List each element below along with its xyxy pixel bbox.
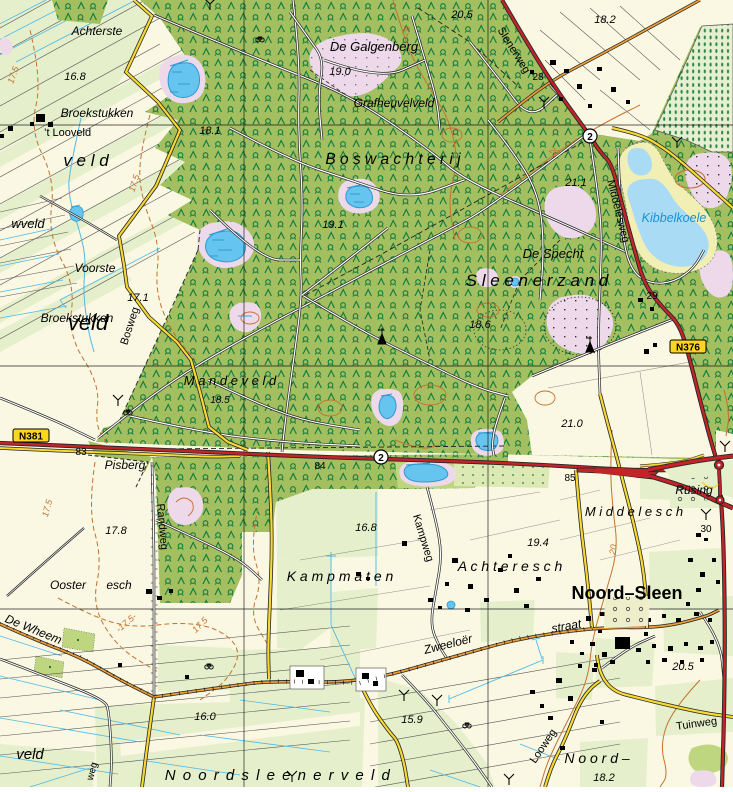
svg-text:Achterste: Achterste — [71, 24, 123, 38]
svg-text:20.5: 20.5 — [671, 661, 694, 673]
svg-text:Broekstukken: Broekstukken — [41, 311, 114, 325]
svg-text:17.8: 17.8 — [105, 525, 127, 537]
svg-text:29: 29 — [646, 291, 658, 302]
svg-text:21.0: 21.0 — [560, 418, 583, 430]
svg-text:N o o r d –: N o o r d – — [564, 750, 630, 766]
svg-text:esch: esch — [106, 578, 132, 592]
svg-text:Ooster: Ooster — [50, 578, 87, 592]
svg-text:wveld: wveld — [11, 216, 45, 231]
svg-text:21.1: 21.1 — [564, 177, 586, 189]
svg-text:16.8: 16.8 — [355, 522, 377, 534]
svg-text:18.1: 18.1 — [199, 125, 220, 137]
svg-text:De Specht: De Specht — [523, 246, 585, 261]
svg-text:18.2: 18.2 — [594, 14, 615, 26]
svg-text:K a m p m a t e n: K a m p m a t e n — [287, 568, 394, 584]
svg-text:M a n d e v e l d: M a n d e v e l d — [184, 373, 277, 388]
svg-text:2: 2 — [378, 453, 384, 464]
svg-text:85: 85 — [564, 473, 576, 484]
svg-text:N o o r d s l e e n e r v e l: N o o r d s l e e n e r v e l d — [165, 767, 392, 784]
svg-text:16.8: 16.8 — [64, 71, 86, 83]
svg-text:veld: veld — [16, 746, 44, 763]
svg-text:Rüsing: Rüsing — [675, 483, 713, 497]
svg-text:Grafheuvelveld: Grafheuvelveld — [354, 96, 435, 110]
svg-text:De Galgenberg: De Galgenberg — [330, 39, 419, 54]
svg-text:Kibbelkoele: Kibbelkoele — [642, 211, 707, 225]
svg-text:17.1: 17.1 — [127, 292, 148, 304]
svg-text:28: 28 — [532, 72, 544, 83]
svg-text:S l e e n e r z a n d: S l e e n e r z a n d — [466, 271, 609, 290]
svg-text:19.4: 19.4 — [527, 537, 548, 549]
svg-text:30: 30 — [700, 524, 712, 535]
svg-text:2: 2 — [587, 132, 593, 143]
svg-text:Pisberg: Pisberg — [105, 458, 146, 472]
svg-text:v e l d: v e l d — [63, 151, 109, 170]
svg-text:18.6: 18.6 — [469, 319, 491, 331]
svg-text:19.0: 19.0 — [329, 66, 351, 78]
svg-text:A c h t e r e s c h: A c h t e r e s c h — [457, 558, 563, 574]
svg-text:Broekstukken: Broekstukken — [61, 106, 134, 120]
svg-text:Voorste: Voorste — [75, 261, 116, 275]
svg-text:18.5: 18.5 — [210, 395, 230, 406]
svg-text:’t Looveld: ’t Looveld — [44, 127, 91, 139]
svg-text:18.2: 18.2 — [593, 772, 614, 784]
svg-text:20: 20 — [607, 544, 619, 557]
svg-text:B o s w a c h t e r i j: B o s w a c h t e r i j — [325, 151, 461, 168]
svg-text:N376: N376 — [676, 343, 700, 354]
svg-text:20.5: 20.5 — [450, 9, 473, 21]
svg-text:N381: N381 — [19, 432, 43, 443]
svg-text:M i d d e l e s c h: M i d d e l e s c h — [585, 504, 683, 519]
svg-text:15.9: 15.9 — [401, 714, 422, 726]
svg-text:19.1: 19.1 — [322, 219, 343, 231]
svg-text:16.0: 16.0 — [194, 711, 216, 723]
svg-text:83: 83 — [75, 447, 87, 458]
svg-text:84: 84 — [314, 461, 326, 472]
svg-text:Noord–Sleen: Noord–Sleen — [571, 583, 682, 603]
